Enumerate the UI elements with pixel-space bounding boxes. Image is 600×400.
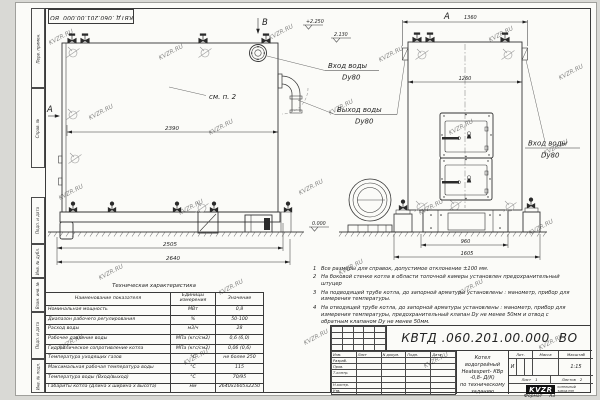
label-inlet-right: Вход воды (528, 140, 568, 148)
ground-ticks (48, 232, 546, 237)
dim-2640: 2640 (166, 256, 180, 262)
frame-col-podp-data-1: Подп. и дата (31, 197, 45, 244)
table-row: Рабочее давление водыМПа (кгс/см2)0,6 (6… (46, 335, 264, 345)
table-row: Номинальная мощностьМВт0,8 (46, 306, 264, 316)
front-view-bolts (430, 114, 501, 229)
format-value: А3 (549, 394, 555, 399)
front-view-position-marks (415, 49, 517, 212)
table-row: Максимальная рабочая температура воды°С1… (46, 364, 264, 374)
format-label: Формат А3 (524, 394, 555, 399)
callout-see-item-2: см. п. 2 (209, 93, 237, 101)
pedestal-valve-left (399, 200, 407, 210)
sheet-row: Лист1 Листов2 (509, 375, 593, 383)
frame-col-inv-dubl: Инв. № дубл. (31, 244, 45, 278)
mass-label: Масса (533, 351, 559, 359)
doc-number: КВТД .060.201.00.000 ВО (386, 326, 592, 350)
note-item: 1Все размеры для справок, допустимое отк… (308, 266, 572, 273)
dim-1360: 1360 (464, 15, 477, 21)
side-view-valves (68, 34, 292, 212)
logo-caption: КОТЕЛЬНЫЙ ЗАВОД РЭП (557, 386, 575, 393)
tech-col-units: Единицы измерения (171, 293, 216, 306)
revision-grid (331, 326, 386, 350)
label-outlet: Выход воды (337, 106, 382, 114)
view-a-arrow-label: А (46, 105, 53, 115)
frame-col-sprav-no: Справ. № (31, 88, 45, 168)
label-inlet-mid-dy: Dy80 (342, 74, 361, 82)
elev-2250: +2.250 (306, 19, 324, 25)
note-item: 2На боковой стенке котла в области топоч… (308, 274, 572, 288)
dim-1260: 1260 (459, 76, 472, 82)
drawing-sheet-page: { "watermark": { "text": "KVZR.RU" }, "d… (0, 0, 600, 400)
label-outlet-dy: Dy80 (355, 118, 374, 126)
lit-value: И (509, 359, 517, 375)
dimension-lines (57, 20, 540, 265)
dim-2505: 2505 (163, 242, 177, 248)
pipe-labels: Вход воды Dy80 Выход воды Dy80 Вход воды… (267, 56, 580, 160)
boiler-drawing: 2390 2505 2640 1260 960 1605 В А А 1360 … (45, 8, 591, 288)
scale-label: Масштаб (559, 351, 593, 359)
title-block-right: Лит. Масса Масштаб И 1:15 Лист1 Листов2 … (508, 350, 592, 394)
side-view-position-marks (67, 47, 212, 213)
elev-2130: 2.130 (334, 32, 348, 38)
table-row: Диапазон рабочего регулирования%50-100 (46, 315, 264, 325)
dim-1605: 1605 (461, 251, 474, 257)
front-view-valves (413, 33, 535, 208)
table-row: Гидравлическое сопротивление котлаМПа (к… (46, 344, 264, 354)
signature-area: Изм.ЛистN докум.Подп.Дата Разраб. Пров. … (331, 350, 456, 394)
frame-col-podp-data-2: Подп. и дата (31, 312, 45, 359)
front-view-title: А (443, 12, 450, 22)
elevation-marks: +2.250 2.130 0.000 (303, 19, 351, 231)
elev-0000: 0.000 (312, 221, 326, 227)
note-item: 3На подводящей трубе котла, до запорной … (308, 290, 572, 304)
fan-position-mark (449, 200, 462, 211)
label-inlet-right-dy: Dy80 (541, 152, 560, 160)
tech-table-title: Техническая характеристика (45, 283, 263, 289)
lit-label: Лит. (509, 351, 533, 359)
table-row: Габариты котла (Длина х ширина х высота)… (46, 383, 264, 393)
dimension-texts: 2390 2505 2640 1260 960 1605 (163, 76, 473, 262)
view-b-label: В (262, 18, 268, 28)
mass-value (533, 359, 559, 375)
table-row: Расход водым3/ч28 (46, 325, 264, 335)
label-inlet-mid: Вход воды (328, 62, 368, 70)
frame-col-vzam-inv: Взам. инв. № (31, 278, 45, 312)
dim-2390: 2390 (165, 126, 179, 132)
side-view-linework (59, 43, 309, 239)
table-row: Температура уходящих газов°Сне более 250 (46, 354, 264, 364)
note-item: 4На отводящей трубе котла, до запорной а… (308, 305, 572, 326)
view-labels: В А А 1360 см. п. 2 (46, 12, 477, 118)
tech-table: Наименование показателяЕдиницы измерения… (45, 292, 264, 393)
scale-value: 1:15 (559, 359, 593, 375)
dim-960: 960 (461, 239, 471, 245)
product-name: Котел водогрейный Heatexpert- КВр -0,8- … (456, 350, 508, 394)
table-row: Температура воды (Вход/выход)°С70/95 (46, 373, 264, 383)
frame-col-inv-podl: Инв. № подл. (31, 359, 45, 393)
tech-col-value: Значение (216, 293, 264, 306)
tech-col-name: Наименование показателя (46, 293, 171, 306)
frame-col-perv-primen: Перв. примен. (31, 8, 45, 88)
notes-list: 1Все размеры для справок, допустимое отк… (308, 266, 572, 327)
fan-linework (348, 179, 412, 232)
title-block: КВТД .060.201.00.000 ВО Изм.ЛистN докум.… (330, 325, 591, 393)
